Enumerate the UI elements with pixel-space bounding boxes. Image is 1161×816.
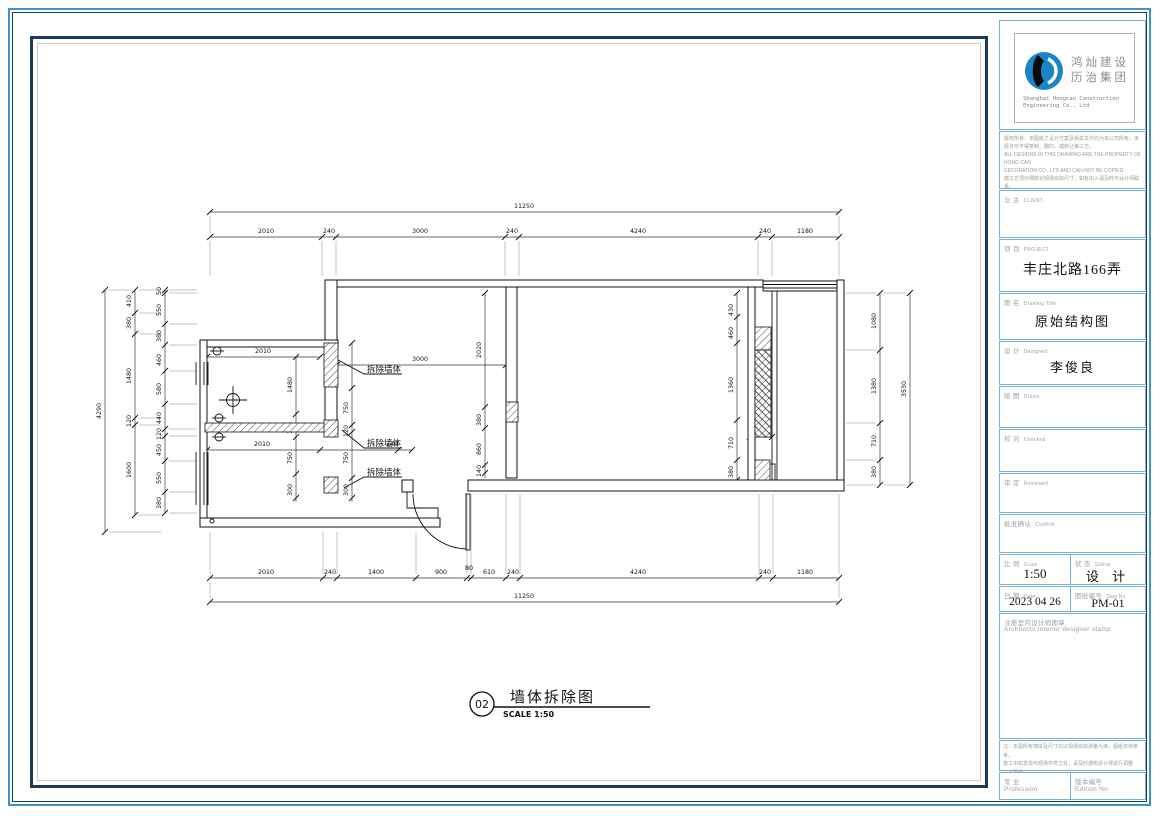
status-value: 设 计 bbox=[1071, 566, 1145, 585]
demolish-hatch-3 bbox=[324, 477, 338, 493]
demolish-hatch-1 bbox=[324, 343, 338, 387]
drawing-title-bubble: 02 墙体拆除图 SCALE 1:50 bbox=[470, 688, 650, 719]
wall-entry-step bbox=[407, 492, 438, 518]
dim-text: 240 bbox=[759, 569, 771, 576]
dim-text: 11250 bbox=[514, 593, 534, 600]
dim-text: 240 bbox=[324, 569, 336, 576]
demolish-hatch-2b bbox=[324, 420, 338, 437]
dim-text: 4240 bbox=[630, 228, 646, 235]
field-checked: 校 对Checked bbox=[999, 429, 1146, 472]
socket-icon bbox=[212, 433, 226, 441]
field-status: 状 态Status 设 计 bbox=[1070, 554, 1146, 585]
dim-text: 710 bbox=[728, 437, 735, 449]
socket-icon bbox=[210, 347, 224, 355]
checked-label-cn: 校 对 bbox=[1004, 436, 1020, 443]
field-profession: 专 业 Profession bbox=[999, 772, 1071, 800]
confirm-label-cn: 批准确认 bbox=[1004, 521, 1031, 528]
dim-text: 240 bbox=[323, 228, 335, 235]
dim-text: 1480 bbox=[126, 368, 133, 384]
disclaimer-cell: 注：本图所有墙体及尺寸均以现场实际测量为准，图纸仅供参考。 施工中如发现与现场不… bbox=[999, 740, 1146, 771]
dim-text: 460 bbox=[728, 327, 735, 339]
dim-text: 3000 bbox=[412, 228, 428, 235]
dim-text: 2010 bbox=[254, 441, 270, 448]
dim-text: 430 bbox=[728, 304, 735, 316]
dim-text: 4240 bbox=[630, 569, 646, 576]
demolish-hatch-6 bbox=[755, 350, 771, 437]
dim-text: 3530 bbox=[901, 381, 908, 397]
dim-text: 380 bbox=[476, 414, 483, 426]
demolish-label: 拆除墙体 bbox=[367, 364, 402, 375]
balcony-inner-wall bbox=[772, 291, 777, 480]
scale-value: 1:50 bbox=[1000, 566, 1070, 582]
dim-text: 11250 bbox=[514, 203, 534, 210]
logo-box: 鸿灿建设 历治集团 Shanghai Hongcan Construction … bbox=[1014, 33, 1135, 123]
dim-text: 610 bbox=[483, 569, 495, 576]
field-project: 项 目PROJECT 丰庄北路166弄 bbox=[999, 239, 1146, 292]
survey-target-icon bbox=[219, 386, 247, 414]
company-logo-icon bbox=[1023, 50, 1065, 92]
wall-bottom bbox=[468, 480, 844, 491]
checked-label-en: Checked bbox=[1024, 437, 1046, 443]
dim-text: 1380 bbox=[871, 378, 878, 394]
dim-text: 550 bbox=[156, 472, 163, 484]
demolish-hatch-7 bbox=[755, 460, 770, 480]
dim-text: 120 bbox=[126, 415, 133, 427]
dim-text: 380 bbox=[156, 330, 163, 342]
reviewed-label-cn: 审 定 bbox=[1004, 480, 1020, 487]
designed-label-cn: 设 计 bbox=[1004, 348, 1020, 355]
dim-text: 1400 bbox=[368, 569, 384, 576]
balcony-window bbox=[763, 281, 843, 291]
stamp-cell: 注册室内设计师图章 Architects Interior designer s… bbox=[999, 613, 1146, 739]
dim-text: 1360 bbox=[728, 377, 735, 393]
wall-top bbox=[325, 280, 763, 287]
dim-text: 2010 bbox=[255, 348, 271, 355]
stamp-label-en: Architects Interior designer stamp bbox=[1004, 626, 1111, 633]
dim-text: 1180 bbox=[797, 228, 813, 235]
drawing-title: 墙体拆除图 bbox=[510, 688, 595, 706]
project-value: 丰庄北路166弄 bbox=[1000, 259, 1145, 279]
dim-text: 4290 bbox=[96, 403, 103, 419]
field-dwg-no: 图纸编号Dwg No PM-01 bbox=[1070, 586, 1146, 612]
dim-text: 900 bbox=[435, 569, 447, 576]
wall-living-left-lower bbox=[325, 386, 337, 423]
dim-text: 380 bbox=[871, 466, 878, 478]
dim-text: 440 bbox=[156, 412, 163, 424]
profession-label-cn: 专 业 bbox=[1004, 779, 1020, 786]
dim-text: 710 bbox=[871, 435, 878, 447]
dim-text: 140 bbox=[476, 465, 483, 477]
drawing-title-value: 原始结构图 bbox=[1000, 311, 1145, 330]
company-name-en: Shanghai Hongcan Construction Engineerin… bbox=[1023, 96, 1119, 110]
edition-label-en: Edition No bbox=[1075, 786, 1108, 793]
dim-text: 1480 bbox=[287, 377, 294, 393]
door-leaf bbox=[466, 494, 470, 550]
dwg-no-value: PM-01 bbox=[1071, 596, 1145, 611]
field-confirm: 批准确认Confirm bbox=[999, 514, 1146, 553]
field-scale: 比 例Scale 1:50 bbox=[999, 554, 1071, 585]
drawn-label-en: Drawn bbox=[1024, 394, 1040, 400]
field-drawing-title: 图 名Drawing Title 原始结构图 bbox=[999, 293, 1146, 340]
dim-text: 240 bbox=[759, 228, 771, 235]
wall-wing-left bbox=[200, 340, 207, 525]
wall-wing-top bbox=[202, 340, 338, 347]
dim-text: 1180 bbox=[797, 569, 813, 576]
field-client: 业 主CLIENT bbox=[999, 190, 1146, 238]
demolish-hatch-5 bbox=[755, 327, 771, 350]
dim-text: 3000 bbox=[412, 356, 428, 363]
dim-text: 380 bbox=[126, 317, 133, 329]
dim-text: 2020 bbox=[476, 342, 483, 358]
designed-label-en: Designed bbox=[1024, 349, 1048, 355]
drawn-label-cn: 绘 图 bbox=[1004, 393, 1020, 400]
dim-text: 750 bbox=[343, 402, 350, 414]
field-edition: 版本编号 Edition No bbox=[1070, 772, 1146, 800]
dim-text: 550 bbox=[156, 304, 163, 316]
drawing-scale: SCALE 1:50 bbox=[503, 710, 555, 719]
wall-room-right bbox=[748, 287, 755, 480]
reviewed-label-en: Reviewed bbox=[1024, 481, 1048, 487]
dimension-texts: 11250 2010 240 3000 240 4240 240 1180 20… bbox=[96, 203, 908, 600]
project-label-cn: 项 目 bbox=[1004, 246, 1020, 253]
profession-label-en: Profession bbox=[1004, 786, 1038, 793]
demolish-label: 拆除墙体 bbox=[367, 467, 402, 478]
company-name-cn: 鸿灿建设 历治集团 bbox=[1071, 56, 1129, 86]
notes-cell: 版权所有：本图纸之设计方案及相关文件均为本公司所有，未经许可不得复制、翻印，或转… bbox=[999, 131, 1146, 189]
wall-living-left-upper bbox=[325, 280, 337, 343]
demolish-walls bbox=[205, 327, 771, 493]
logo-cell: 鸿灿建设 历治集团 Shanghai Hongcan Construction … bbox=[999, 20, 1146, 130]
dim-text: 1600 bbox=[126, 462, 133, 478]
dim-text: 240 bbox=[507, 569, 519, 576]
drawing-number: 02 bbox=[475, 698, 489, 711]
dim-text: 380 bbox=[156, 497, 163, 509]
plan-symbols bbox=[210, 347, 247, 523]
entry-left-jamb bbox=[402, 480, 413, 492]
dim-text: 300 bbox=[287, 484, 294, 496]
dim-text: 50 bbox=[156, 287, 163, 295]
dim-text: 860 bbox=[476, 443, 483, 455]
dim-text: 380 bbox=[728, 466, 735, 478]
dim-text: 460 bbox=[156, 354, 163, 366]
demolish-hatch-4 bbox=[506, 402, 518, 422]
dim-text: 2010 bbox=[258, 569, 274, 576]
field-date: 日 期Date 2023 04 26 bbox=[999, 586, 1071, 612]
designed-value: 李俊良 bbox=[1000, 357, 1145, 376]
wall-wing-bottom bbox=[200, 518, 440, 527]
dim-text: 410 bbox=[126, 295, 133, 307]
wall-middle bbox=[506, 287, 517, 478]
dim-text: 750 bbox=[287, 452, 294, 464]
client-label-en: CLIENT bbox=[1024, 198, 1044, 204]
wall-right bbox=[837, 280, 844, 491]
socket-icon bbox=[212, 414, 226, 422]
dim-text: 1080 bbox=[871, 313, 878, 329]
demolish-label: 拆除墙体 bbox=[367, 438, 402, 449]
date-value: 2023 04 26 bbox=[1000, 596, 1070, 608]
edition-label-cn: 版本编号 bbox=[1075, 779, 1102, 786]
dim-text: 240 bbox=[506, 228, 518, 235]
field-drawn: 绘 图Drawn bbox=[999, 386, 1146, 428]
drawing-title-label-en: Drawing Title bbox=[1024, 301, 1057, 307]
field-reviewed: 审 定Reviewed bbox=[999, 473, 1146, 513]
dim-text: 750 bbox=[343, 452, 350, 464]
confirm-label-en: Confirm bbox=[1035, 522, 1055, 528]
demolish-labels: 拆除墙体 拆除墙体 拆除墙体 bbox=[338, 360, 402, 488]
dim-text: 450 bbox=[156, 444, 163, 456]
dim-text: 580 bbox=[156, 383, 163, 395]
dim-text: 2010 bbox=[258, 228, 274, 235]
client-label-cn: 业 主 bbox=[1004, 197, 1020, 204]
dim-text: 80 bbox=[465, 565, 473, 572]
demolish-hatch-2 bbox=[205, 423, 338, 432]
floor-plan: .dim{stroke:#3a3a3a;stroke-width:0.7;fil… bbox=[30, 36, 988, 788]
dim-text: 120 bbox=[156, 428, 163, 440]
drawing-title-label-cn: 图 名 bbox=[1004, 300, 1020, 307]
project-label-en: PROJECT bbox=[1024, 247, 1049, 253]
cad-sheet: { "sheet": { "company": { "cn_line1": "鸿… bbox=[0, 0, 1161, 816]
field-designed: 设 计Designed 李俊良 bbox=[999, 341, 1146, 385]
